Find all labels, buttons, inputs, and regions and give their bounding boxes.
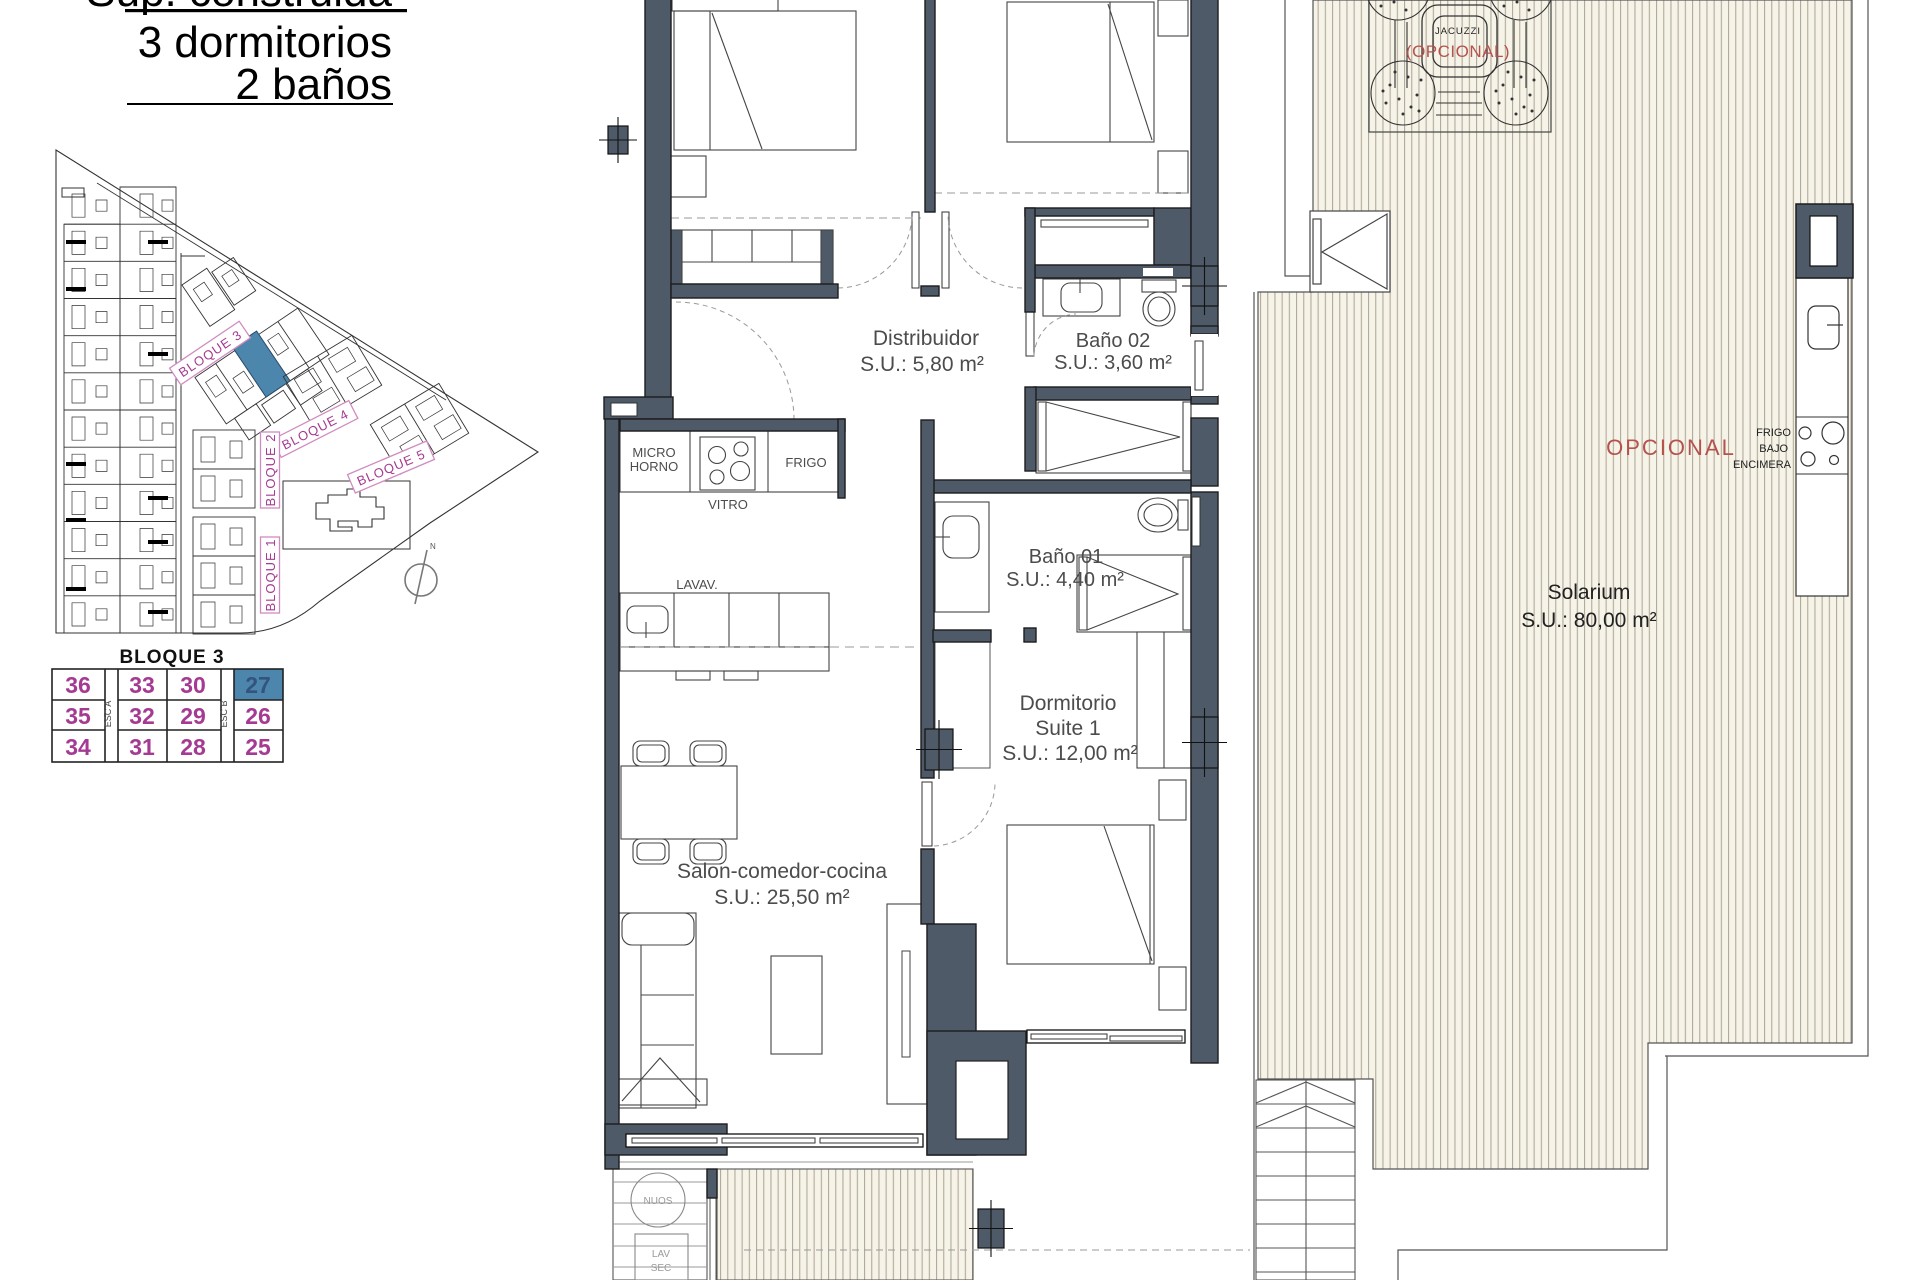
svg-text:S.U.: 4,40 m²: S.U.: 4,40 m² <box>1006 569 1124 591</box>
svg-text:BLOQUE 1: BLOQUE 1 <box>263 538 278 611</box>
svg-text:30: 30 <box>180 672 206 698</box>
svg-text:LAVAV.: LAVAV. <box>676 577 717 592</box>
svg-text:S.U.: 12,00 m²: S.U.: 12,00 m² <box>1002 742 1137 765</box>
svg-text:Suite 1: Suite 1 <box>1035 717 1100 740</box>
svg-text:JACUZZI: JACUZZI <box>1435 26 1481 37</box>
svg-text:35: 35 <box>65 703 91 729</box>
svg-text:N: N <box>430 542 436 551</box>
svg-text:(OPCIONAL): (OPCIONAL) <box>1406 42 1510 61</box>
svg-text:BLOQUE 3: BLOQUE 3 <box>119 647 224 668</box>
svg-text:33: 33 <box>129 672 155 698</box>
svg-text:25: 25 <box>245 734 271 760</box>
svg-text:27: 27 <box>245 672 271 698</box>
svg-text:NUOS: NUOS <box>644 1196 673 1207</box>
svg-text:SEC: SEC <box>651 1263 672 1274</box>
svg-text:BAJO: BAJO <box>1759 443 1788 455</box>
svg-text:Salon-comedor-cocina: Salon-comedor-cocina <box>677 860 887 883</box>
svg-text:36: 36 <box>65 672 91 698</box>
svg-text:Dormitorio: Dormitorio <box>1020 692 1117 715</box>
svg-text:S.U.: 3,60 m²: S.U.: 3,60 m² <box>1054 352 1172 374</box>
svg-text:31: 31 <box>129 734 155 760</box>
svg-text:BLOQUE 2: BLOQUE 2 <box>263 433 278 506</box>
svg-text:Sup. construida: Sup. construida <box>86 0 392 16</box>
svg-text:FRIGO: FRIGO <box>785 455 826 470</box>
svg-text:VITRO: VITRO <box>708 497 748 512</box>
svg-text:26: 26 <box>245 703 271 729</box>
svg-text:ESC B: ESC B <box>219 700 229 727</box>
svg-text:32: 32 <box>129 703 155 729</box>
svg-text:FRIGO: FRIGO <box>1756 427 1791 439</box>
svg-text:S.U.: 25,50 m²: S.U.: 25,50 m² <box>714 886 849 909</box>
svg-text:29: 29 <box>180 703 206 729</box>
svg-text:Baño 02: Baño 02 <box>1076 330 1151 352</box>
svg-text:S.U.: 80,00 m²: S.U.: 80,00 m² <box>1521 609 1656 632</box>
svg-text:28: 28 <box>180 734 206 760</box>
svg-text:Baño 01: Baño 01 <box>1029 546 1104 568</box>
svg-text:Distribuidor: Distribuidor <box>873 327 979 350</box>
svg-text:ESC A: ESC A <box>103 701 113 728</box>
svg-text:OPCIONAL: OPCIONAL <box>1606 435 1736 460</box>
svg-text:HORNO: HORNO <box>630 459 678 474</box>
svg-text:ENCIMERA: ENCIMERA <box>1733 459 1792 471</box>
svg-text:Solarium: Solarium <box>1548 581 1631 604</box>
svg-text:MICRO: MICRO <box>632 445 675 460</box>
svg-text:2 baños: 2 baños <box>235 60 392 109</box>
svg-text:S.U.: 5,80 m²: S.U.: 5,80 m² <box>860 353 984 376</box>
svg-text:34: 34 <box>65 734 91 760</box>
svg-text:LAV: LAV <box>652 1249 670 1260</box>
